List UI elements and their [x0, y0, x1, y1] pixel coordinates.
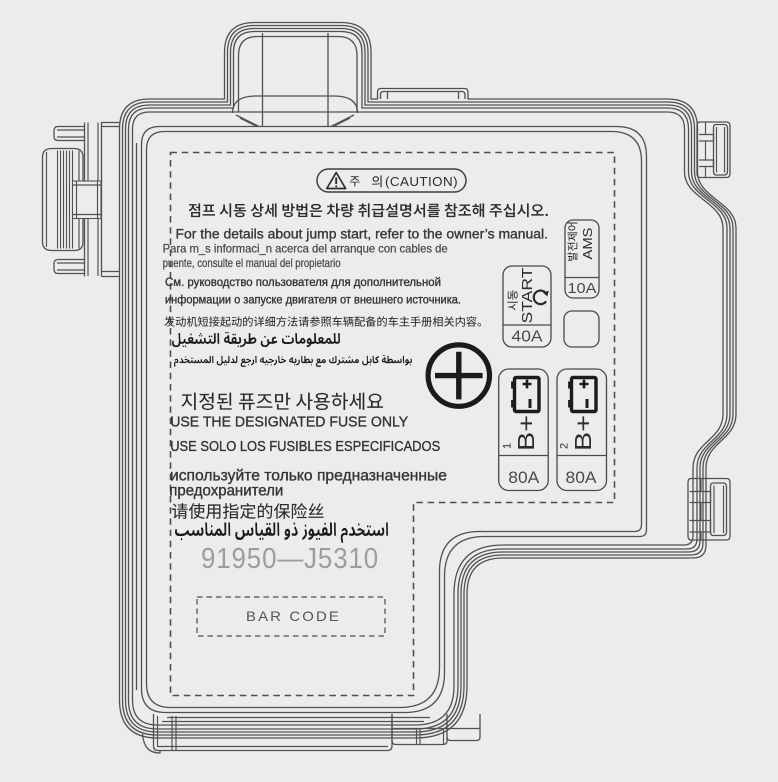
svg-text:AMS: AMS [580, 227, 595, 259]
svg-text:См. руководство пользователя д: См. руководство пользователя для дополни… [165, 275, 441, 289]
svg-text:B+: B+ [513, 415, 539, 451]
svg-text:Para m_s informaci_n acerca de: Para m_s informaci_n acerca del arranque… [163, 242, 448, 256]
svg-text:80A: 80A [566, 469, 597, 487]
svg-text:информации о запуске двигателя: информации о запуске двигателя от внешне… [165, 293, 461, 307]
svg-text:80A: 80A [508, 469, 539, 487]
svg-text:91950—J5310: 91950—J5310 [201, 543, 379, 575]
svg-text:2: 2 [559, 443, 571, 449]
svg-text:предохранители: предохранители [169, 483, 283, 500]
svg-text:B+: B+ [570, 415, 596, 451]
svg-text:USE SOLO LOS FUSIBLES ESPECIFI: USE SOLO LOS FUSIBLES ESPECIFICADOS [170, 439, 440, 455]
svg-text:1: 1 [501, 443, 513, 449]
svg-text:10A: 10A [568, 280, 597, 297]
svg-text:40A: 40A [512, 329, 543, 346]
svg-text:USE THE DESIGNATED FUSE ONLY: USE THE DESIGNATED FUSE ONLY [170, 414, 408, 431]
svg-text:puente, consulte el manual del: puente, consulte el manual del propietar… [163, 256, 341, 270]
svg-text:For the details about jump sta: For the details about jump start, refer … [176, 227, 549, 242]
svg-text:BAR CODE: BAR CODE [246, 608, 341, 624]
svg-text:(CAUTION): (CAUTION) [385, 175, 458, 189]
